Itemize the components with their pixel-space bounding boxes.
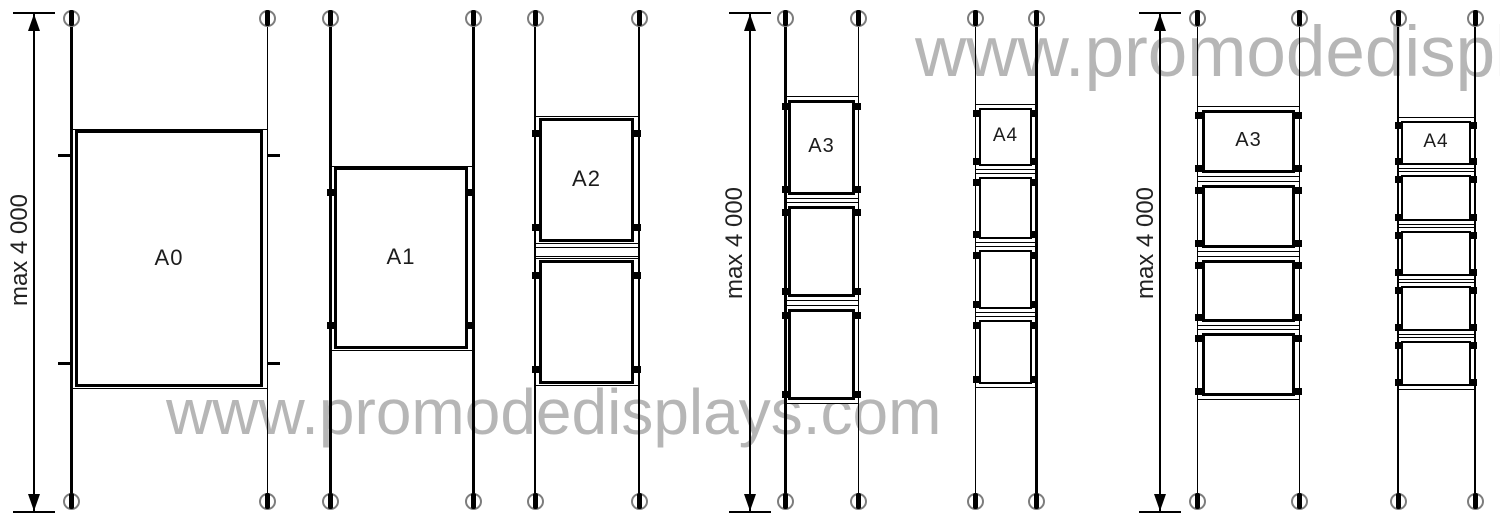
- poster-a4-portrait-label: A4: [975, 125, 1036, 147]
- fixing-slot-icon: [69, 493, 74, 509]
- poster-a3-portrait-pocket-frame: [788, 309, 855, 400]
- cable-clamp: [468, 322, 475, 329]
- fixing-slot-icon: [1034, 493, 1039, 509]
- fixing-slot-icon: [1195, 493, 1200, 509]
- cable-clamp: [854, 103, 861, 110]
- suspension-cable: [975, 26, 976, 494]
- suspension-cable: [858, 26, 859, 494]
- cable-clamp: [1395, 287, 1402, 294]
- cable-clamp: [973, 376, 980, 383]
- cable-clamp: [1395, 324, 1402, 331]
- cable-clamp: [854, 391, 861, 398]
- cable-clamp: [1031, 252, 1038, 259]
- cable-clamp: [973, 110, 980, 117]
- cable-clamp: [782, 186, 789, 193]
- suspension-cable: [534, 26, 536, 494]
- cable-clamp: [854, 186, 861, 193]
- dimension-arrow-down-icon: [28, 494, 40, 511]
- fixing-slot-icon: [783, 493, 788, 509]
- suspension-cable: [1035, 26, 1038, 494]
- dimension-end-bar-bottom: [13, 511, 55, 513]
- fixing-slot-icon: [637, 493, 642, 509]
- fixing-slot-icon: [265, 493, 270, 509]
- cable-clamp: [973, 231, 980, 238]
- cable-clamp: [973, 179, 980, 186]
- poster-a3-landscape-pocket-frame: [1202, 260, 1295, 322]
- fixing-slot-icon: [856, 10, 861, 26]
- cable-clamp: [854, 209, 861, 216]
- cable-clamp: [1470, 158, 1477, 165]
- cable-clamp: [532, 366, 539, 373]
- cable-clamp: [854, 288, 861, 295]
- cable-clamp: [1031, 179, 1038, 186]
- dimension-label: max 4 000: [720, 168, 750, 318]
- fixing-slot-icon: [973, 493, 978, 509]
- cable-clamp-tick: [268, 154, 280, 157]
- fixing-slot-icon: [856, 493, 861, 509]
- poster-a4-portrait-pocket-frame: [979, 320, 1032, 384]
- cable-clamp: [468, 189, 475, 196]
- dimension-arrow-down-icon: [1154, 494, 1166, 511]
- cable-clamp: [1031, 158, 1038, 165]
- cable-clamp: [1195, 240, 1202, 247]
- cable-clamp-tick: [268, 362, 280, 365]
- cable-clamp: [1031, 231, 1038, 238]
- fixing-slot-icon: [533, 10, 538, 26]
- cable-clamp: [634, 130, 641, 137]
- cable-clamp: [782, 288, 789, 295]
- cable-clamp: [532, 130, 539, 137]
- fixing-slot-icon: [637, 10, 642, 26]
- cable-clamp: [1031, 110, 1038, 117]
- cable-clamp: [973, 252, 980, 259]
- fixing-slot-icon: [973, 10, 978, 26]
- cable-clamp: [1295, 262, 1302, 269]
- cable-clamp: [1395, 269, 1402, 276]
- cable-clamp: [1031, 376, 1038, 383]
- poster-a3-landscape-pocket-frame: [1202, 185, 1295, 248]
- cable-clamp: [973, 158, 980, 165]
- cable-clamp: [973, 322, 980, 329]
- fixing-slot-icon: [783, 10, 788, 26]
- cable-clamp: [1195, 335, 1202, 342]
- fixing-slot-icon: [328, 493, 333, 509]
- drawing-stage: www.promodedispla www.promodedisplays.co…: [0, 0, 1500, 529]
- poster-a2-label: A2: [534, 166, 639, 192]
- suspension-cable: [1474, 26, 1476, 494]
- cable-clamp: [1295, 388, 1302, 395]
- dimension-arrow-up-icon: [744, 14, 756, 31]
- cable-clamp: [1470, 176, 1477, 183]
- cable-clamp: [1031, 322, 1038, 329]
- cable-clamp: [1295, 187, 1302, 194]
- dimension-label: max 4 000: [5, 175, 35, 325]
- cable-clamp: [1395, 158, 1402, 165]
- cable-clamp: [532, 224, 539, 231]
- fixing-slot-icon: [1473, 493, 1478, 509]
- cable-clamp: [1195, 262, 1202, 269]
- poster-a3-landscape-label: A3: [1197, 129, 1300, 152]
- cable-clamp: [1470, 379, 1477, 386]
- cable-clamp: [1395, 122, 1402, 129]
- cable-clamp: [1395, 176, 1402, 183]
- cable-clamp-tick: [58, 154, 70, 157]
- cable-clamp: [634, 272, 641, 279]
- suspension-cable: [1299, 26, 1300, 494]
- cable-clamp: [327, 322, 334, 329]
- suspension-cable: [784, 26, 787, 494]
- cable-clamp: [1470, 269, 1477, 276]
- poster-a3-portrait-pocket-frame: [788, 206, 855, 297]
- suspension-cable: [1197, 26, 1198, 494]
- poster-a4-landscape-pocket-frame: [1401, 175, 1471, 221]
- cable-clamp: [1031, 301, 1038, 308]
- cable-clamp: [854, 312, 861, 319]
- cable-clamp: [782, 391, 789, 398]
- fixing-slot-icon: [1473, 10, 1478, 26]
- cable-clamp: [1395, 342, 1402, 349]
- dimension-label: max 4 000: [1131, 168, 1161, 318]
- poster-a0-label: A0: [70, 245, 268, 271]
- cable-clamp: [1295, 112, 1302, 119]
- fixing-slot-icon: [328, 10, 333, 26]
- fixing-slot-icon: [1297, 10, 1302, 26]
- cable-clamp: [327, 189, 334, 196]
- cable-clamp: [634, 366, 641, 373]
- fixing-slot-icon: [1396, 10, 1401, 26]
- poster-a4-landscape-pocket-frame: [1401, 231, 1471, 276]
- poster-a3-portrait-label: A3: [784, 135, 859, 158]
- fixing-slot-icon: [1034, 10, 1039, 26]
- poster-a1-label: A1: [329, 244, 473, 270]
- poster-a4-landscape-label: A4: [1397, 131, 1475, 153]
- poster-a2-connector-rail: [534, 247, 639, 257]
- cable-clamp: [634, 224, 641, 231]
- cable-clamp: [782, 312, 789, 319]
- cable-clamp: [1195, 112, 1202, 119]
- poster-a3-landscape-pocket-frame: [1202, 333, 1295, 396]
- cable-clamp: [1395, 214, 1402, 221]
- fixing-slot-icon: [69, 10, 74, 26]
- poster-a4-landscape-pocket-frame: [1401, 341, 1471, 386]
- cable-clamp: [1470, 324, 1477, 331]
- dimension-end-bar-bottom: [1139, 511, 1181, 513]
- cable-clamp: [1395, 232, 1402, 239]
- poster-a4-portrait-pocket-frame: [979, 177, 1032, 239]
- fixing-slot-icon: [1297, 493, 1302, 509]
- fixing-slot-icon: [1195, 10, 1200, 26]
- suspension-cable: [638, 26, 640, 494]
- cable-clamp: [782, 103, 789, 110]
- suspension-cable: [1397, 26, 1399, 494]
- cable-clamp: [1195, 187, 1202, 194]
- dimension-arrow-down-icon: [744, 494, 756, 511]
- cable-clamp: [1470, 122, 1477, 129]
- cable-clamp: [1295, 165, 1302, 172]
- cable-clamp: [1195, 165, 1202, 172]
- fixing-slot-icon: [471, 10, 476, 26]
- cable-clamp: [1195, 388, 1202, 395]
- dimension-arrow-up-icon: [28, 14, 40, 31]
- dimension-end-bar-bottom: [729, 511, 771, 513]
- cable-clamp: [1295, 335, 1302, 342]
- cable-clamp: [1195, 314, 1202, 321]
- fixing-slot-icon: [471, 493, 476, 509]
- fixing-slot-icon: [533, 493, 538, 509]
- cable-clamp: [1470, 287, 1477, 294]
- cable-clamp-tick: [58, 362, 70, 365]
- poster-a4-landscape-pocket-frame: [1401, 286, 1471, 331]
- cable-clamp: [1395, 379, 1402, 386]
- poster-a2-pocket-frame: [539, 260, 634, 384]
- cable-clamp: [1295, 240, 1302, 247]
- fixing-slot-icon: [265, 10, 270, 26]
- watermark-top: www.promodedispla: [915, 17, 1500, 88]
- cable-clamp: [1470, 214, 1477, 221]
- cable-clamp: [782, 209, 789, 216]
- cable-clamp: [1295, 314, 1302, 321]
- cable-clamp: [1470, 342, 1477, 349]
- cable-clamp: [1470, 232, 1477, 239]
- cable-clamp: [532, 272, 539, 279]
- dimension-arrow-up-icon: [1154, 14, 1166, 31]
- fixing-slot-icon: [1396, 493, 1401, 509]
- cable-clamp: [973, 301, 980, 308]
- poster-a4-portrait-pocket-frame: [979, 250, 1032, 309]
